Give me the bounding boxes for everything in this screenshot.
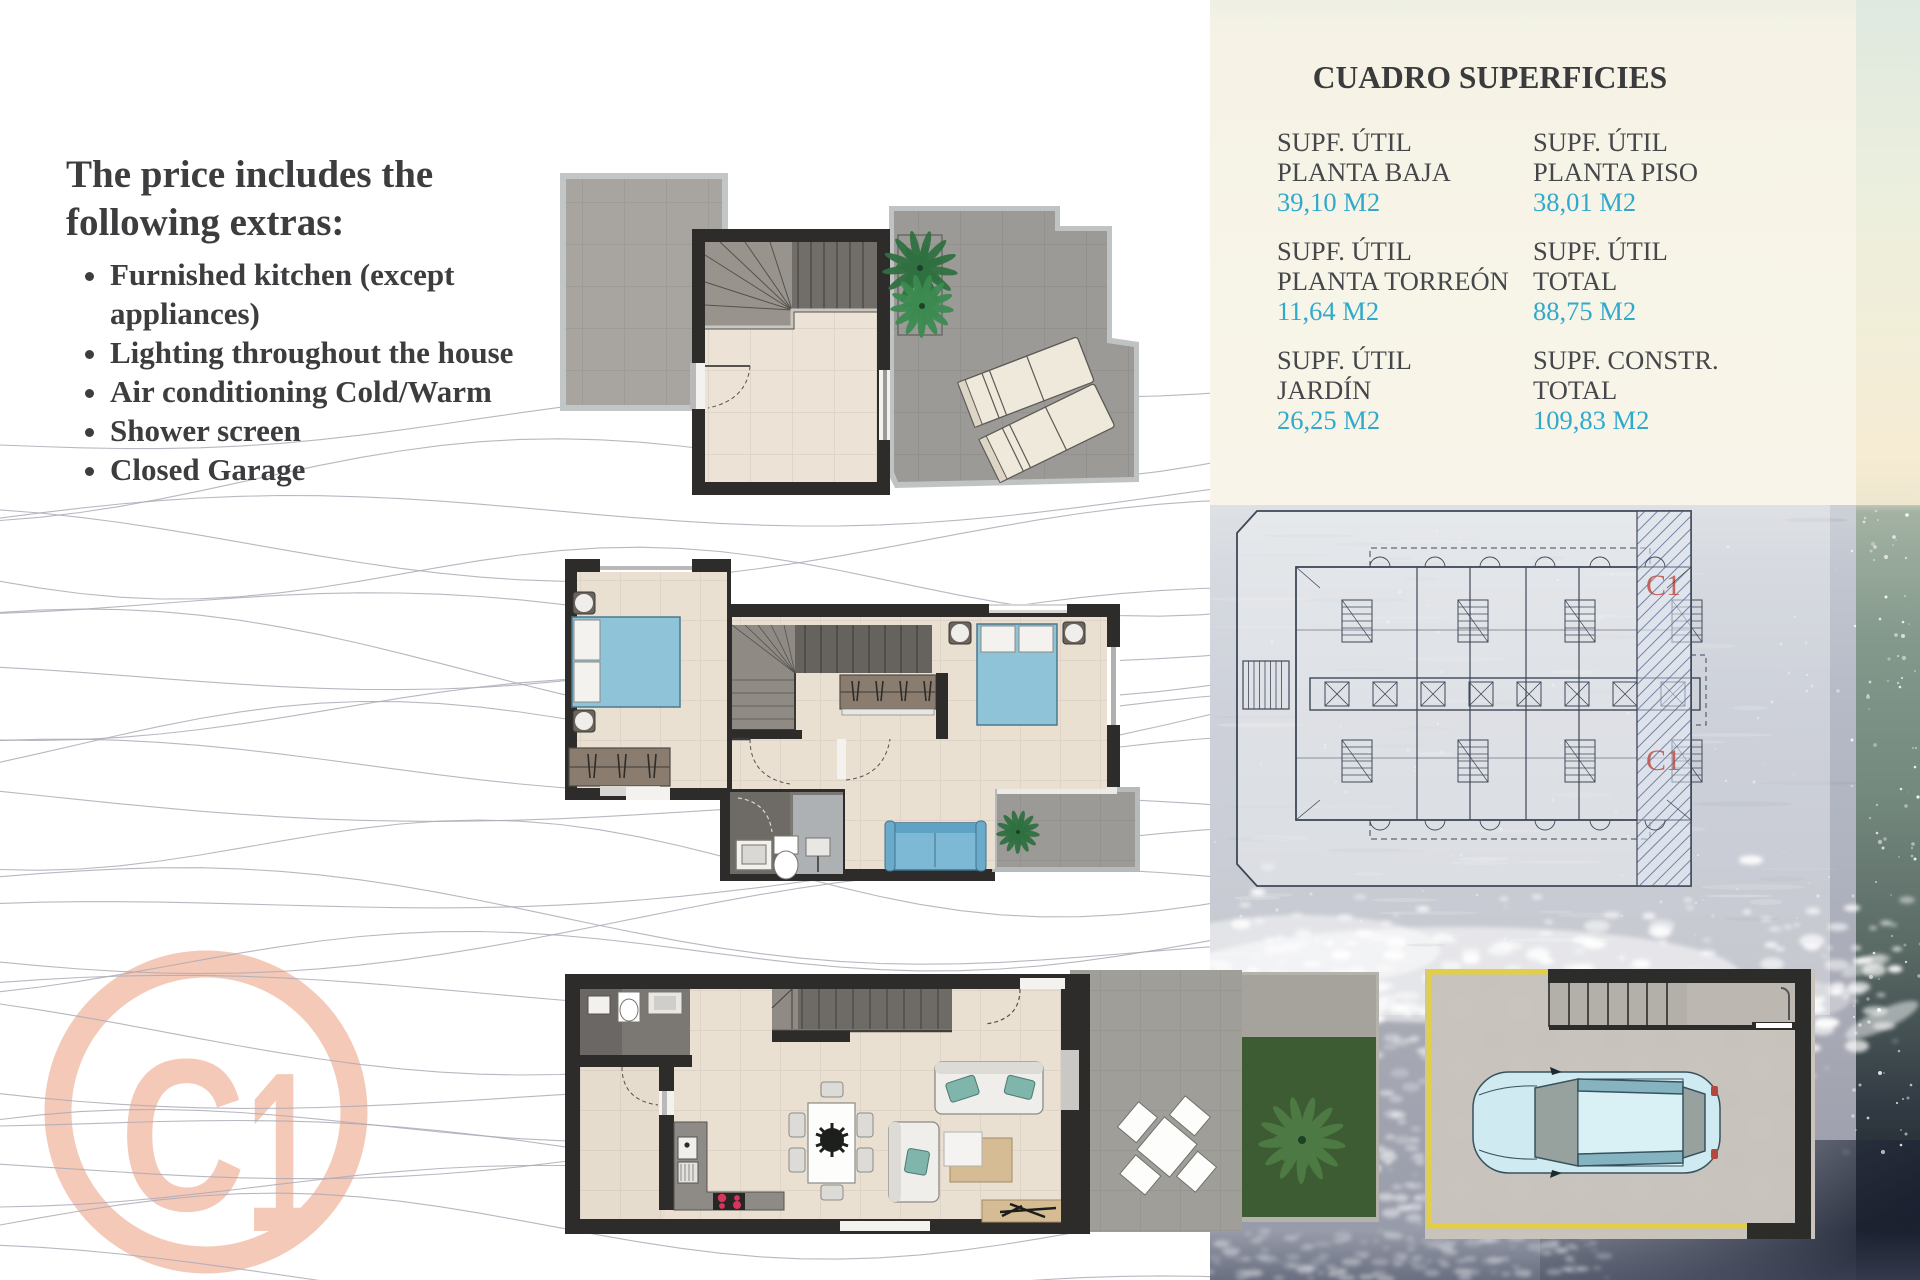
svg-text:C1: C1 bbox=[1646, 744, 1681, 777]
svg-text:C1: C1 bbox=[1646, 569, 1681, 602]
